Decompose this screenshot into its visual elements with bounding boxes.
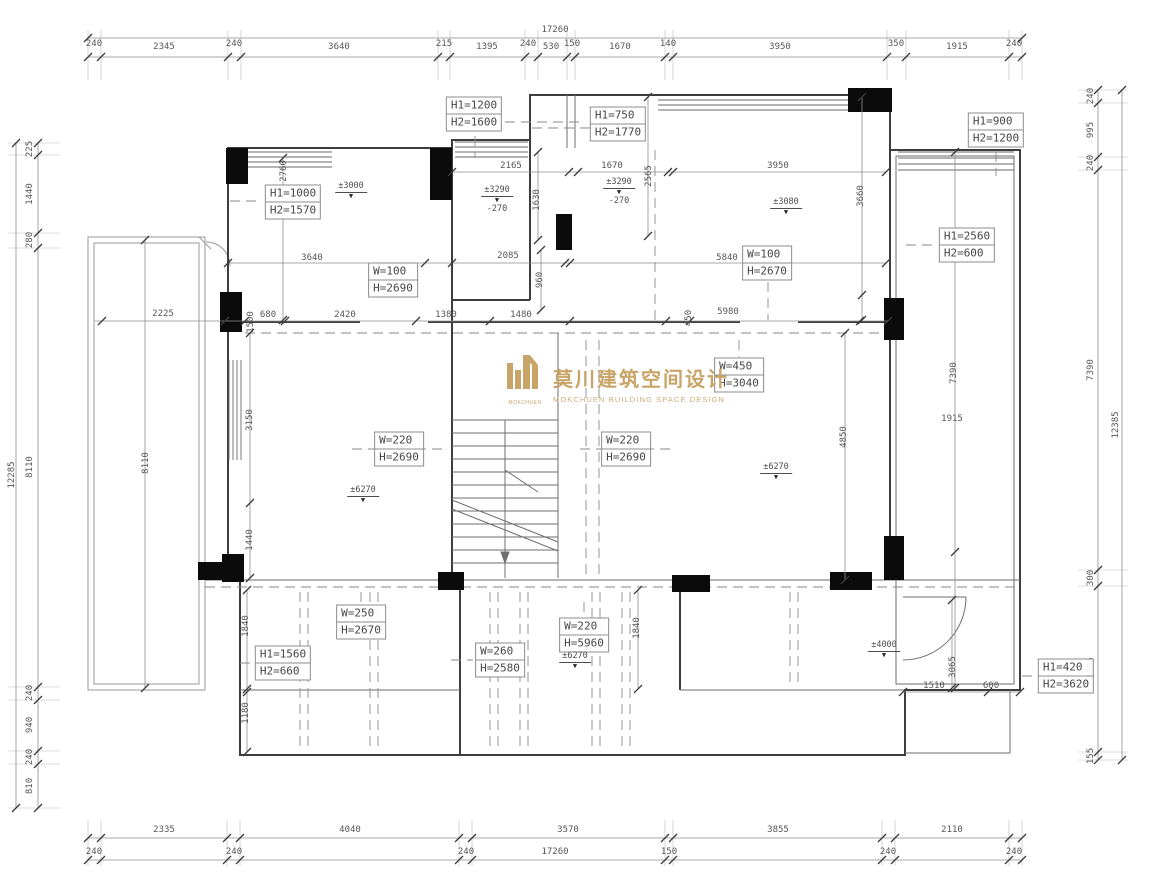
opening-label: W=260H=2580	[475, 643, 525, 678]
interior-dim: 960	[535, 272, 545, 288]
interior-dim: 2165	[500, 161, 522, 171]
interior-dim: 1630	[532, 189, 542, 211]
interior-dim: 2225	[152, 309, 174, 319]
chain-left-overall: 12285	[7, 461, 17, 488]
interior-dim: 1840	[632, 617, 642, 639]
elevation-mark: ±6270▼	[559, 652, 591, 669]
chain-left-dim: 240	[25, 749, 35, 765]
interior-dim: 1510	[923, 681, 945, 691]
chain-top-dim: 240	[1006, 39, 1022, 49]
chain-bottom-dim: 3570	[557, 825, 579, 835]
interior-dim: 1440	[245, 529, 255, 551]
chain-bottom-dim: 240	[1006, 847, 1022, 857]
chain-top-dim: 2345	[153, 42, 175, 52]
interior-dim: 7390	[949, 362, 959, 384]
chain-bottom-dim: 150	[661, 847, 677, 857]
chain-top-dim: 240	[520, 39, 536, 49]
annotation-layer: 2402345240364021513952405301501670140395…	[0, 0, 1150, 884]
interior-dim: 1380	[435, 310, 457, 320]
chain-right-dim: 155	[1086, 748, 1096, 764]
logo-building-icon	[506, 351, 544, 395]
interior-dim: 2420	[334, 310, 356, 320]
opening-label: H1=2560H2=600	[939, 228, 995, 263]
interior-dim: 1915	[941, 414, 963, 424]
chain-bottom-dim: 4040	[339, 825, 361, 835]
opening-label: W=220H=2690	[601, 432, 651, 467]
interior-dim: 3065	[948, 656, 958, 678]
chain-left-dim: 810	[25, 778, 35, 794]
opening-label: W=100H=2690	[368, 263, 418, 298]
elevation-mark: ±3290▼-270	[603, 178, 635, 205]
chain-top-dim: 1915	[946, 42, 968, 52]
chain-top-dim: 240	[86, 39, 102, 49]
logo-english-name: MOKCHUEN BUILDING SPACE DESIGN	[553, 395, 729, 404]
opening-label: H1=750H2=1770	[590, 107, 646, 142]
logo-mark-text: MOKCHUEN	[506, 400, 544, 406]
chain-top-overall: 17260	[541, 25, 568, 35]
chain-bottom-dim: 240	[880, 847, 896, 857]
interior-dim: 1480	[510, 310, 532, 320]
opening-label: H1=1000H2=1570	[265, 185, 321, 220]
interior-dim: 2085	[497, 251, 519, 261]
chain-right-dim: 240	[1086, 88, 1096, 104]
interior-dim: 4850	[839, 426, 849, 448]
chain-left-dim: 225	[25, 141, 35, 157]
chain-right-dim: 240	[1086, 155, 1096, 171]
opening-label: W=250H=2670	[336, 605, 386, 640]
interior-dim: 3150	[245, 409, 255, 431]
opening-label: H1=900H2=1200	[968, 113, 1024, 148]
interior-dim: 1670	[601, 161, 623, 171]
interior-dim: 3640	[301, 253, 323, 263]
chain-left-dim: 8110	[25, 456, 35, 478]
chain-top-dim: 150	[564, 39, 580, 49]
interior-dim: 600	[983, 681, 999, 691]
interior-dim: 5980	[717, 307, 739, 317]
interior-dim: 1500	[246, 311, 256, 333]
floor-plan-canvas: 2402345240364021513952405301501670140395…	[0, 0, 1150, 884]
chain-right-overall: 12385	[1111, 411, 1121, 438]
elevation-mark: ±6270▼	[760, 463, 792, 480]
chain-bottom-dim: 240	[226, 847, 242, 857]
chain-bottom-dim: 2335	[153, 825, 175, 835]
elevation-mark: ±3290▼-270	[481, 186, 513, 213]
chain-top-dim: 1395	[476, 42, 498, 52]
interior-dim: 3660	[856, 185, 866, 207]
chain-bottom-dim: 240	[458, 847, 474, 857]
logo-chinese-name: 莫川建筑空间设计	[553, 363, 729, 392]
chain-left-dim: 240	[25, 685, 35, 701]
chain-bottom-dim: 240	[86, 847, 102, 857]
logo: MOKCHUEN 莫川建筑空间设计 MOKCHUEN BUILDING SPAC…	[506, 351, 729, 406]
interior-dim: 3950	[767, 161, 789, 171]
interior-dim: 680	[260, 310, 276, 320]
chain-bottom-overall: 17260	[541, 847, 568, 857]
chain-bottom-dim: 2110	[941, 825, 963, 835]
interior-dim: 450	[684, 310, 694, 326]
chain-right-dim: 300	[1086, 570, 1096, 586]
chain-left-dim: 280	[25, 232, 35, 248]
chain-top-dim: 215	[436, 39, 452, 49]
interior-dim: 1840	[241, 615, 251, 637]
elevation-mark: ±6270▼	[347, 486, 379, 503]
chain-top-dim: 350	[888, 39, 904, 49]
opening-label: H1=1560H2=660	[255, 646, 311, 681]
elevation-mark: ±3080▼	[770, 198, 802, 215]
elevation-mark: ±3000▼	[335, 182, 367, 199]
interior-dim: 1180	[241, 702, 251, 724]
interior-dim: 2760	[279, 160, 289, 182]
chain-top-dim: 3950	[769, 42, 791, 52]
chain-bottom-dim: 3855	[767, 825, 789, 835]
chain-top-dim: 1670	[609, 42, 631, 52]
interior-dim: 5840	[716, 253, 738, 263]
chain-top-dim: 140	[660, 39, 676, 49]
chain-left-dim: 940	[25, 717, 35, 733]
chain-top-dim: 530	[543, 42, 559, 52]
chain-top-dim: 240	[226, 39, 242, 49]
chain-right-dim: 995	[1086, 122, 1096, 138]
elevation-mark: ±4000▼	[868, 641, 900, 658]
chain-left-dim: 1440	[25, 183, 35, 205]
chain-right-dim: 7390	[1086, 359, 1096, 381]
opening-label: W=100H=2670	[742, 246, 792, 281]
opening-label: W=220H=2690	[374, 432, 424, 467]
interior-dim: 8110	[141, 452, 151, 474]
opening-label: H1=1200H2=1600	[446, 97, 502, 132]
interior-dim: 2565	[644, 165, 654, 187]
opening-label: H1=420H2=3620	[1038, 659, 1094, 694]
chain-top-dim: 3640	[328, 42, 350, 52]
opening-label: W=220H=5960	[559, 618, 609, 653]
logo-icon-wrap: MOKCHUEN	[506, 351, 544, 406]
